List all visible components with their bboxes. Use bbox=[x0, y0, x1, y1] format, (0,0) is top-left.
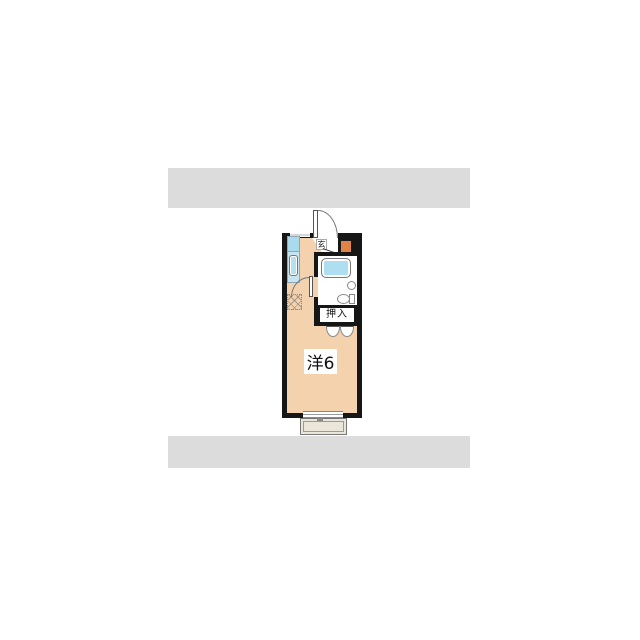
floorplan: 玄 押入 洋6 bbox=[282, 233, 362, 418]
bathroom-left-wall-lower bbox=[314, 297, 318, 305]
balcony-divider bbox=[317, 418, 323, 421]
photo-letterbox-top bbox=[168, 168, 470, 208]
page: 玄 押入 洋6 bbox=[0, 0, 640, 640]
bathtub-icon bbox=[321, 258, 351, 278]
bathroom-door-icon bbox=[309, 276, 313, 297]
closet-door-arc-left bbox=[326, 326, 340, 337]
balcony-railing bbox=[303, 421, 344, 432]
gas-stove-icon bbox=[287, 236, 300, 252]
washing-machine-space-icon bbox=[287, 294, 302, 310]
window-icon bbox=[303, 411, 343, 418]
closet-label: 押入 bbox=[320, 308, 354, 322]
wash-basin-icon bbox=[347, 281, 356, 290]
balcony bbox=[300, 418, 347, 435]
bathroom-left-wall-upper bbox=[314, 256, 318, 277]
main-room-label: 洋6 bbox=[304, 349, 337, 374]
photo-letterbox-bottom bbox=[168, 436, 470, 468]
closet-door-arc-right bbox=[340, 326, 354, 337]
entrance-door-swing-arc bbox=[318, 210, 338, 238]
unit-bathroom bbox=[318, 256, 357, 305]
kitchen-sink-icon bbox=[289, 255, 298, 276]
toilet-bowl-icon bbox=[337, 294, 350, 304]
